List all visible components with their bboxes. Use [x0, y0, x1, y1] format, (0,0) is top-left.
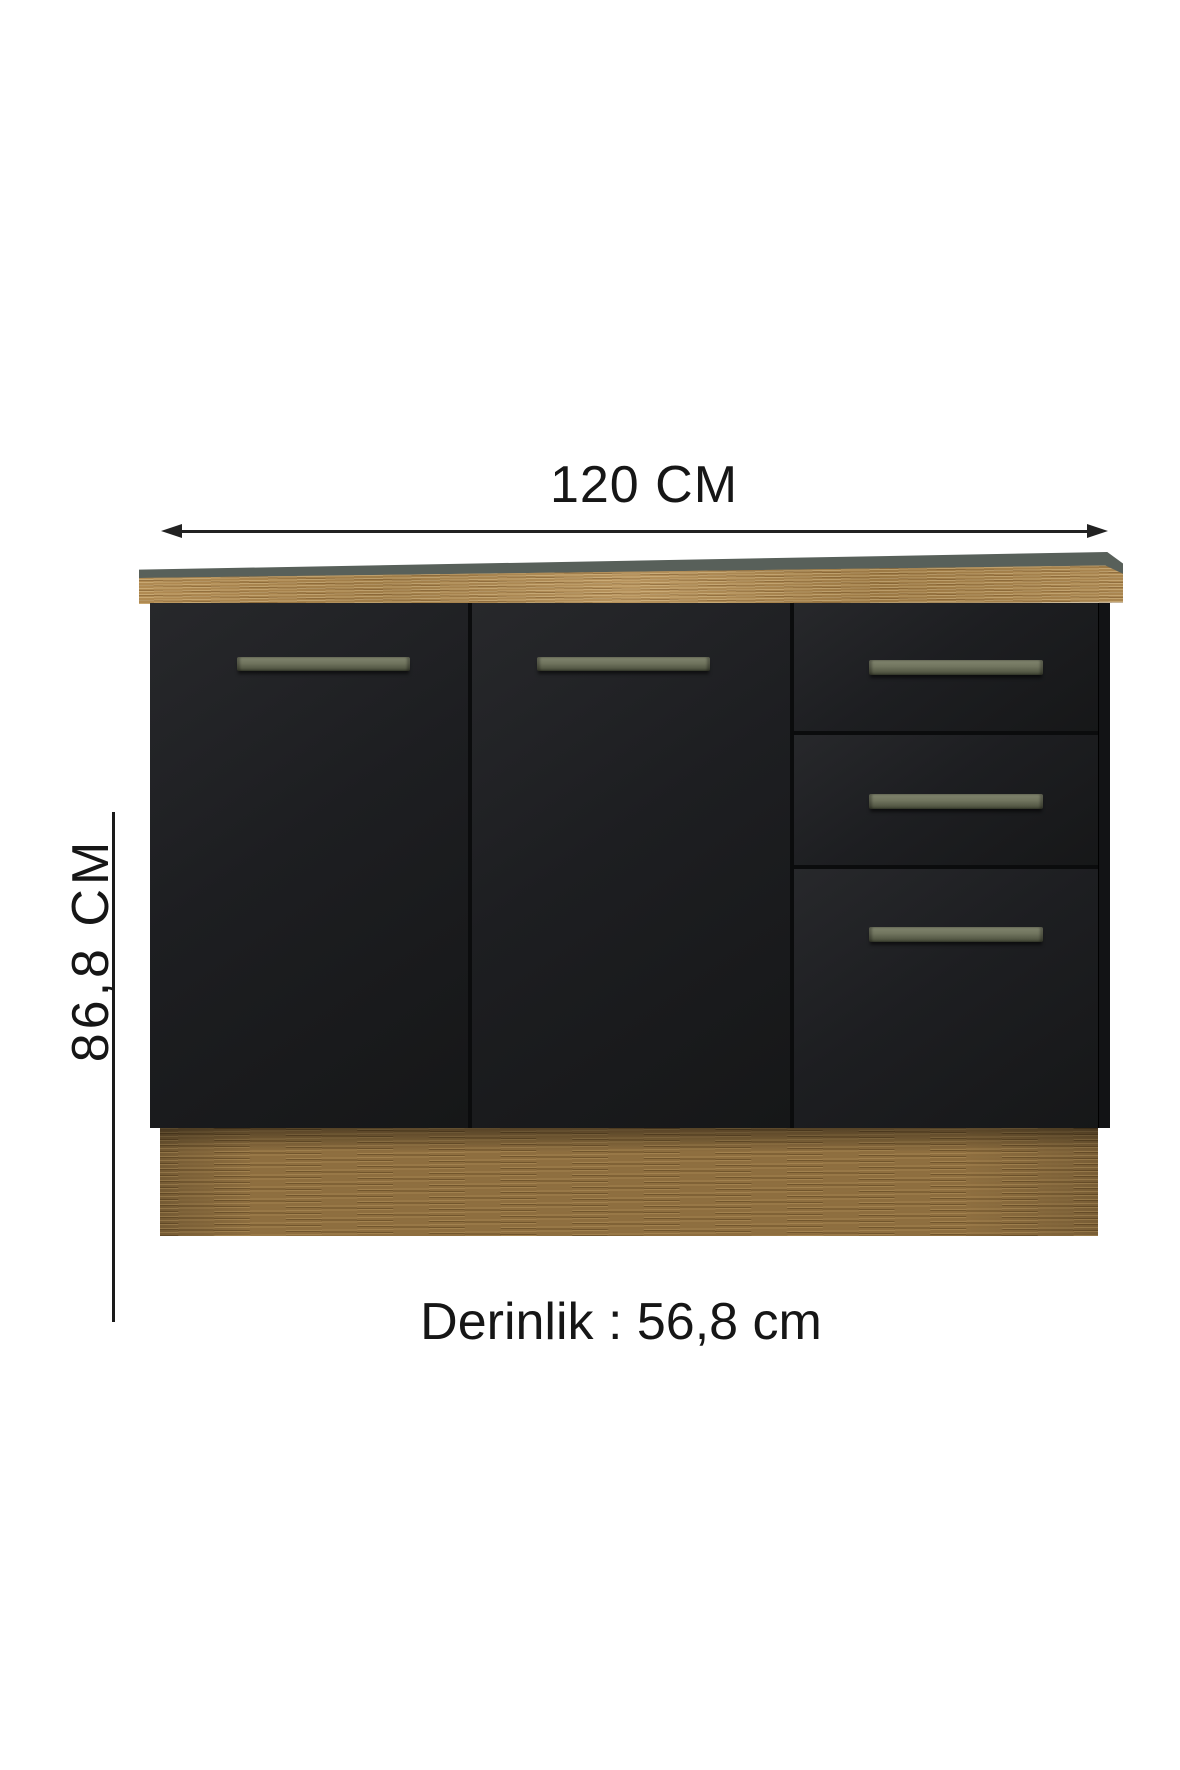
- cabinet-plinth: [160, 1128, 1098, 1236]
- cabinet-body: [150, 603, 1110, 1128]
- top-drawer-handle: [869, 660, 1043, 675]
- width-dimension-label: 120 CM: [550, 455, 738, 515]
- left-door-handle: [237, 657, 410, 671]
- product-dimension-diagram: 120 CM 86,8 CM Derinlik : 56,8 cm: [0, 0, 1180, 1770]
- bottom-drawer-handle: [869, 927, 1043, 942]
- arrow-left-icon: [161, 524, 182, 538]
- height-dimension-line: [112, 812, 115, 1322]
- depth-dimension-label: Derinlik : 56,8 cm: [420, 1292, 822, 1352]
- cabinet-left-door: [150, 603, 468, 1128]
- width-dimension-line: [170, 530, 1090, 533]
- middle-door-handle: [537, 657, 710, 671]
- middle-drawer-handle: [869, 794, 1043, 809]
- cabinet-countertop: [139, 552, 1123, 604]
- arrow-right-icon: [1087, 524, 1108, 538]
- cabinet-middle-door: [472, 603, 790, 1128]
- cabinet-drawer-bottom: [794, 869, 1110, 1128]
- cabinet-side-edge: [1098, 603, 1110, 1128]
- countertop-wood-edge: [139, 552, 1123, 604]
